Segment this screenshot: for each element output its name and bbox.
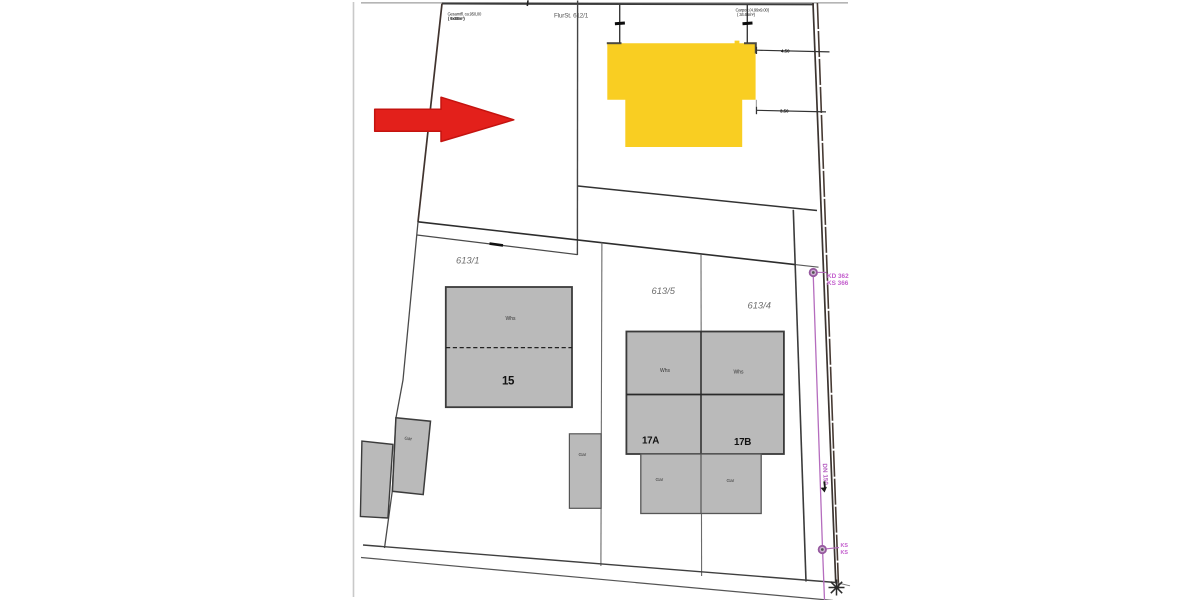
svg-text:KS: KS [841, 550, 849, 556]
svg-text:17B: 17B [734, 437, 751, 448]
svg-text:613/1: 613/1 [456, 255, 479, 266]
svg-text:Whs: Whs [660, 368, 671, 374]
svg-text:( 9x88m²): ( 9x88m²) [448, 16, 465, 21]
svg-text:4.50: 4.50 [781, 48, 790, 53]
svg-text:KS: KS [841, 543, 849, 549]
svg-text:Gar: Gar [727, 478, 735, 483]
svg-text:Whs: Whs [506, 316, 517, 322]
svg-text:3.50: 3.50 [780, 108, 789, 113]
svg-text:Gar: Gar [656, 477, 664, 482]
svg-text:613/5: 613/5 [652, 285, 676, 296]
svg-text:17A: 17A [642, 436, 659, 447]
svg-text:KS 366: KS 366 [827, 280, 849, 287]
svg-text:Whs: Whs [734, 370, 745, 376]
svg-text:FlurSt. 612/1: FlurSt. 612/1 [554, 12, 589, 19]
svg-text:613/4: 613/4 [748, 299, 771, 310]
svg-text:Gar: Gar [404, 436, 413, 442]
svg-text:Gar: Gar [579, 452, 587, 457]
svg-text:15: 15 [502, 376, 515, 388]
svg-text:( 34.65m²): ( 34.65m²) [737, 12, 756, 17]
